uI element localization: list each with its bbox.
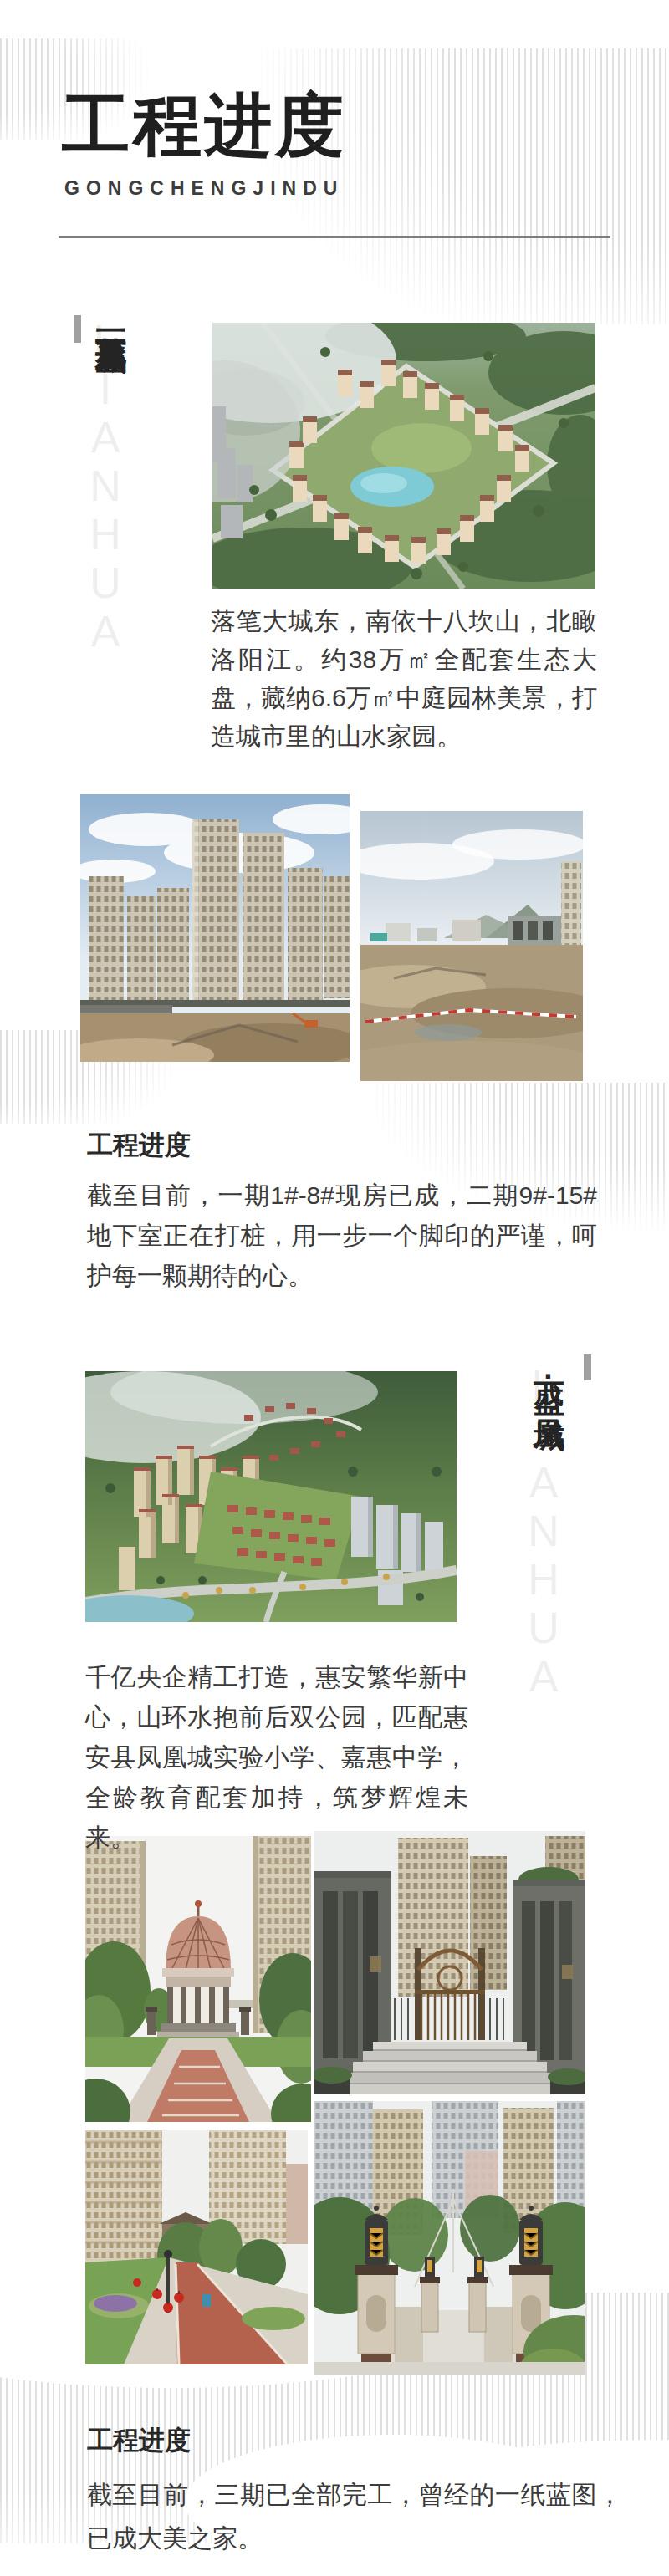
- lantern-path-photo-graphic: [85, 2130, 308, 2364]
- section1-vertical-title: 莲花一万盛凤凰城: [95, 313, 126, 319]
- article-page: 工程进度 GONGCHENGJINDU LIANHUA 莲花一万盛凤凰城: [0, 0, 669, 2576]
- pillar-walkway-photo-graphic: [314, 2101, 585, 2375]
- section2-marker-bar: [584, 1354, 591, 1380]
- aerial-render-photo-2: [85, 1371, 457, 1622]
- construction-photo-right-graphic: [360, 811, 583, 1081]
- gate-photo-graphic: [314, 1831, 585, 2094]
- lantern-path-photo: [85, 2130, 308, 2364]
- construction-photo-left: [80, 794, 350, 1062]
- aerial-render-2-graphic: [85, 1371, 457, 1622]
- section2-watermark: LIANHUA: [522, 1361, 565, 1701]
- page-subtitle: GONGCHENGJINDU: [64, 177, 344, 200]
- gate-photo: [314, 1831, 585, 2094]
- pillar-walkway-photo: [314, 2101, 585, 2375]
- page-title: 工程进度: [62, 80, 346, 172]
- gazebo-photo-graphic: [85, 1836, 311, 2122]
- gazebo-photo: [85, 1836, 311, 2122]
- section2-progress-paragraph: 截至目前，三期已全部完工，曾经的一纸蓝图，已成大美之家。: [87, 2473, 622, 2560]
- aerial-render-1-graphic: [212, 323, 595, 589]
- section1-progress-heading: 工程进度: [87, 1128, 191, 1163]
- section1-watermark: LIANHUA: [84, 316, 127, 655]
- section1-intro-paragraph: 落笔大城东，南依十八坎山，北瞰洛阳江。约38万㎡全配套生态大盘，藏纳6.6万㎡中…: [211, 602, 597, 756]
- section1-marker-bar: [74, 315, 81, 343]
- aerial-render-photo-1: [212, 323, 595, 589]
- construction-photo-right: [360, 811, 583, 1081]
- section2-vertical-title: 万盛·凤凰城: [534, 1358, 564, 1397]
- header-divider: [59, 236, 610, 238]
- construction-photo-left-graphic: [80, 794, 350, 1062]
- section1-progress-paragraph: 截至目前，一期1#-8#现房已成，二期9#-15#地下室正在打桩，用一步一个脚印…: [87, 1176, 597, 1296]
- section2-progress-heading: 工程进度: [87, 2423, 191, 2458]
- section2-intro-paragraph: 千亿央企精工打造，惠安繁华新中心，山环水抱前后双公园，匹配惠安县凤凰城实验小学、…: [85, 1657, 468, 1858]
